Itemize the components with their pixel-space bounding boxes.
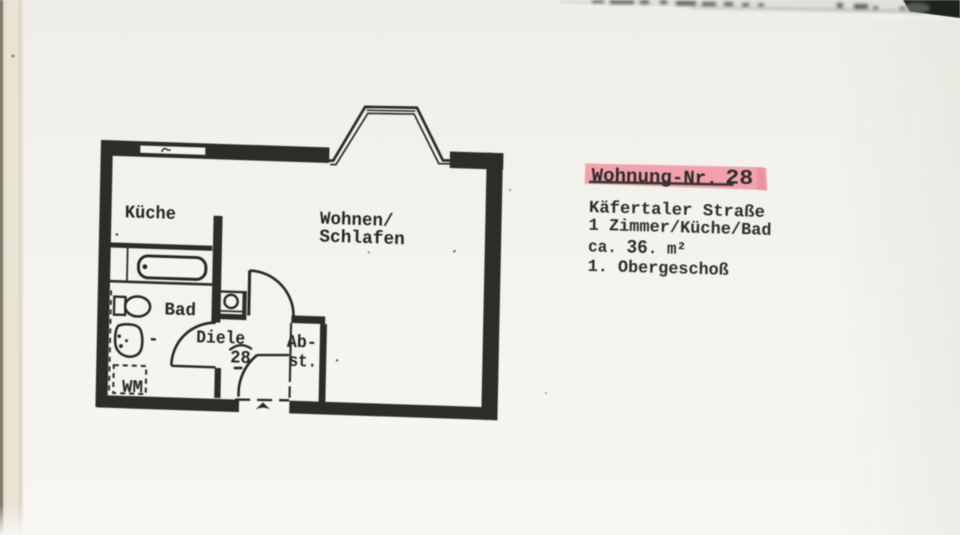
svg-text:WM: WM <box>122 378 143 399</box>
svg-text:st.: st. <box>289 352 317 373</box>
svg-text:1. Obergeschoß: 1. Obergeschoß <box>588 258 729 281</box>
svg-text:Wohnung-Nr.: Wohnung-Nr. <box>591 165 717 191</box>
svg-text:Bad: Bad <box>164 300 196 321</box>
svg-text:Schlafen: Schlafen <box>319 227 405 250</box>
svg-text:28: 28 <box>230 348 251 369</box>
svg-text:Ab-: Ab- <box>287 333 317 354</box>
svg-text:Diele: Diele <box>196 328 245 350</box>
svg-text:28: 28 <box>725 167 753 191</box>
svg-text:ca. 36. m²: ca. 36. m² <box>588 235 686 260</box>
svg-text:1 Zimmer/Küche/Bad: 1 Zimmer/Küche/Bad <box>588 217 771 241</box>
svg-text:Küche: Küche <box>125 203 176 225</box>
